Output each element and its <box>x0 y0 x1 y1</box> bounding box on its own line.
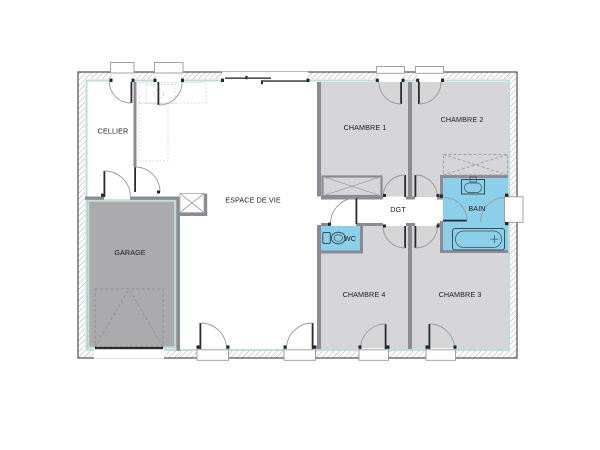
closet-living <box>180 194 207 217</box>
room-label-cellier: CELLIER <box>98 127 129 136</box>
room-label-wc: WC <box>344 234 356 243</box>
room-label-hallway: DGT <box>390 205 406 214</box>
living-window-2 <box>287 323 314 349</box>
entry-door <box>158 82 183 105</box>
living-window1-sill <box>197 350 229 361</box>
living-window2-sill <box>284 350 316 361</box>
bedroom1-window-sill <box>377 67 405 74</box>
floor-plan-canvas: CELLIER GARAGE ESPACE DE VIE CHAMBRE 1 C… <box>0 0 600 450</box>
room-label-bedroom3: CHAMBRE 3 <box>439 290 482 299</box>
bedroom4-window-sill <box>359 350 389 361</box>
cellier-door-sill <box>111 63 135 74</box>
entry-door-sill <box>155 63 184 74</box>
room-label-bedroom2: CHAMBRE 2 <box>441 115 484 124</box>
cellier-living-door <box>134 167 160 194</box>
wc-door <box>330 198 357 224</box>
garage-cellier-door <box>104 171 131 197</box>
room-label-bathroom: BAIN <box>468 204 485 213</box>
room-label-bedroom1: CHAMBRE 1 <box>344 123 387 132</box>
bedroom3-window-sill <box>426 350 456 361</box>
bathroom-window-box <box>505 197 524 223</box>
room-label-bedroom4: CHAMBRE 4 <box>343 290 386 299</box>
bay-window-pane <box>261 80 307 82</box>
room-label-garage: GARAGE <box>114 248 145 257</box>
room-bedroom2 <box>412 82 508 175</box>
bedroom2-window-sill <box>416 67 444 74</box>
room-label-living: ESPACE DE VIE <box>225 196 281 205</box>
cellier-exterior-door <box>110 82 133 103</box>
living-window-1 <box>200 323 227 349</box>
bay-window-pane <box>225 77 271 79</box>
floor-plan-drawing: CELLIER GARAGE ESPACE DE VIE CHAMBRE 1 C… <box>0 0 600 450</box>
closet-bedroom1 <box>323 177 382 197</box>
kitchen-counter-outline <box>139 83 206 162</box>
